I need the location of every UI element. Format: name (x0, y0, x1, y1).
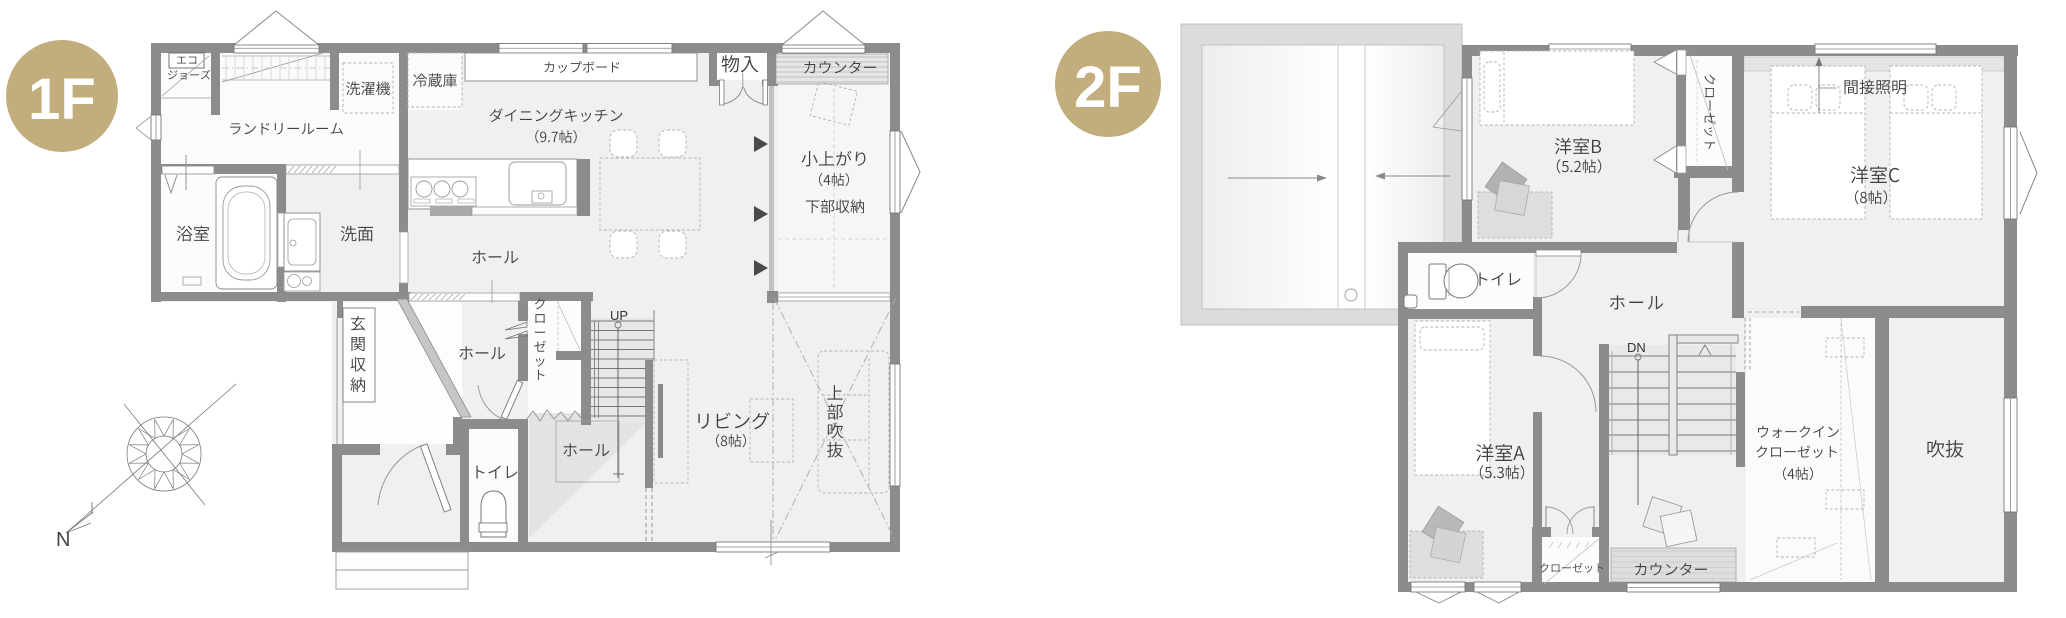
svg-text:1F: 1F (28, 67, 96, 132)
svg-text:N: N (56, 529, 70, 551)
svg-text:UP: UP (610, 308, 628, 323)
svg-text:DN: DN (1627, 340, 1646, 355)
svg-text:2F: 2F (1074, 55, 1142, 120)
